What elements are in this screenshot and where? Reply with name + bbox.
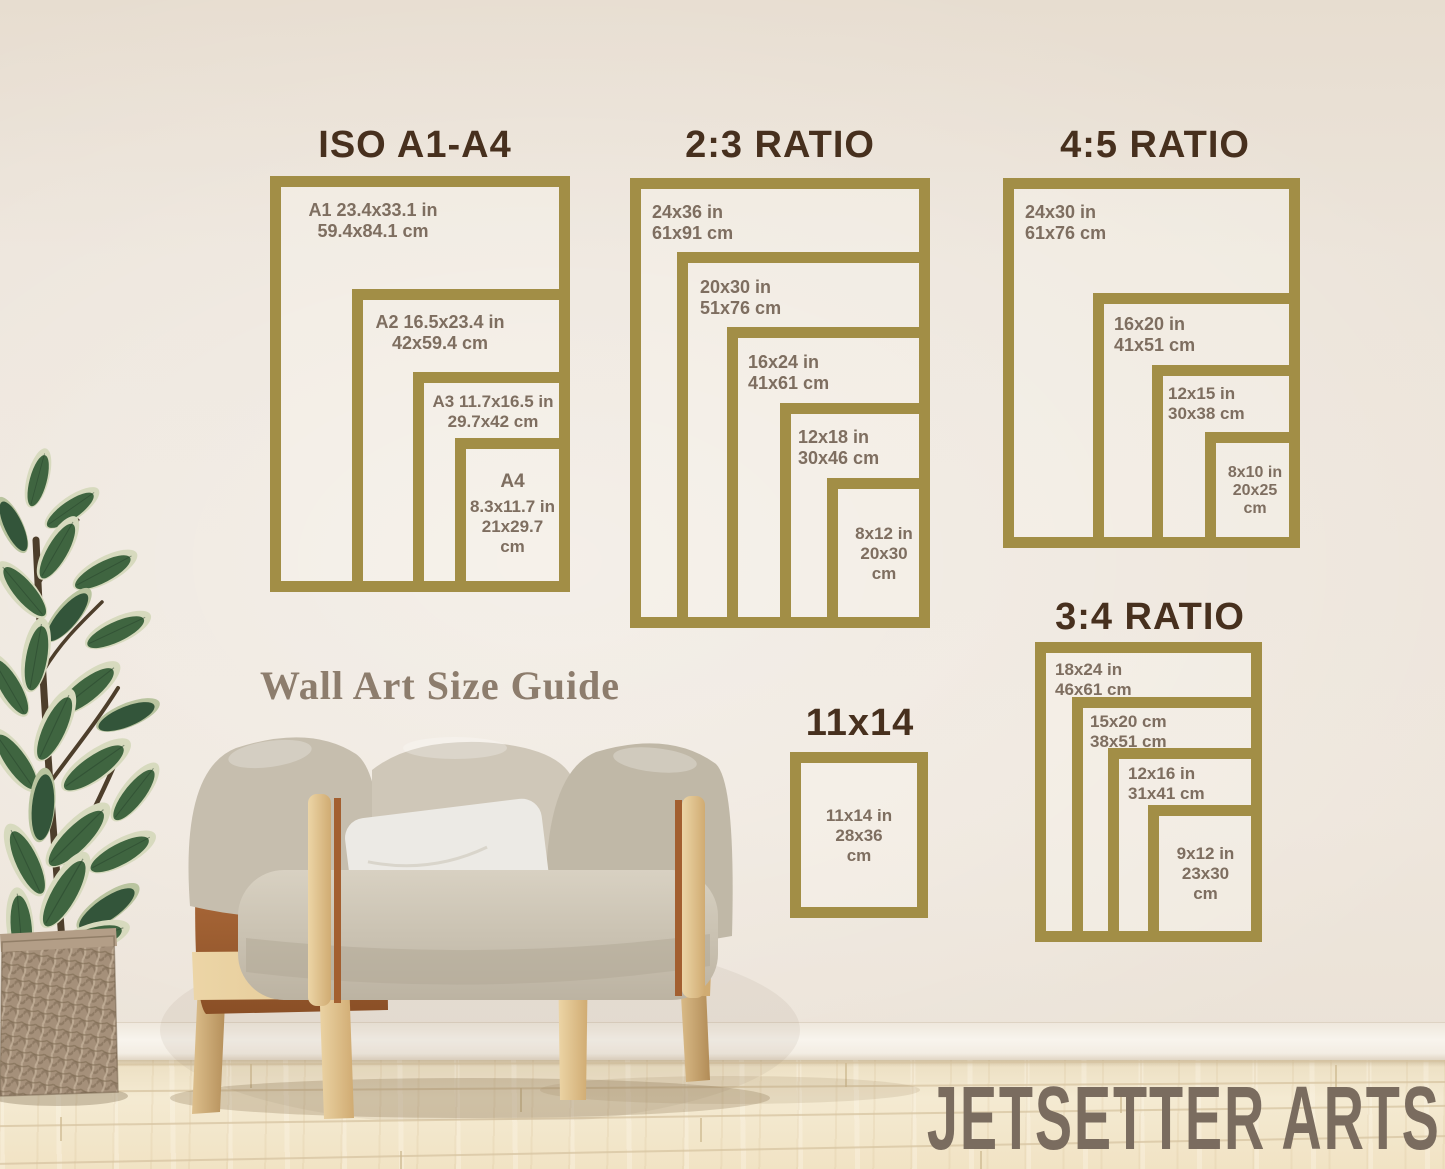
section-title-2-3: 2:3 RATIO bbox=[630, 126, 930, 164]
size-inches: 8x12 in bbox=[838, 524, 930, 544]
frame-label-a4: A4 8.3x11.7 in 21x29.7 cm bbox=[466, 472, 559, 557]
size-cm: 41x51 cm bbox=[1114, 335, 1195, 356]
frame-label-8x12: 8x12 in 20x30 cm bbox=[838, 524, 930, 584]
size-cm: 42x59.4 cm bbox=[365, 333, 515, 354]
floor-plank-joint bbox=[60, 1117, 62, 1141]
section-title-iso: ISO A1-A4 bbox=[250, 126, 580, 164]
frame-label-9x12: 9x12 in 23x30 cm bbox=[1159, 844, 1252, 904]
leather-strap-right bbox=[675, 800, 682, 996]
size-inches: 16x20 in bbox=[1114, 314, 1195, 335]
size-inches: 8.3x11.7 in bbox=[466, 497, 559, 517]
frame-label-24x36: 24x36 in 61x91 cm bbox=[652, 202, 733, 244]
size-inches: 8x10 in bbox=[1216, 464, 1294, 482]
size-inches: A3 11.7x16.5 in bbox=[424, 392, 562, 412]
brand-wordmark: JETSETTER ARTS bbox=[927, 1074, 1441, 1164]
section-title-3-4: 3:4 RATIO bbox=[1000, 598, 1300, 636]
cushion-highlight bbox=[403, 737, 507, 759]
size-inches: 12x18 in bbox=[798, 427, 879, 448]
section-title-4-5: 4:5 RATIO bbox=[1000, 126, 1310, 164]
frame-label-12x16: 12x16 in 31x41 cm bbox=[1128, 764, 1205, 804]
size-inches: 9x12 in bbox=[1159, 844, 1252, 864]
size-cm: 20x30 bbox=[838, 544, 930, 564]
size-inches: 16x24 in bbox=[748, 352, 829, 373]
size-inches: A2 16.5x23.4 in bbox=[365, 312, 515, 333]
size-cm: 38x51 cm bbox=[1090, 732, 1167, 752]
size-cm: 31x41 cm bbox=[1128, 784, 1205, 804]
leather-strap-left bbox=[334, 798, 341, 1003]
size-cm: 46x61 cm bbox=[1055, 680, 1132, 700]
floor-plank-joint bbox=[400, 1151, 402, 1169]
size-cm: 30x38 cm bbox=[1168, 404, 1245, 424]
floor-plank-joint bbox=[700, 1118, 702, 1142]
size-cm: 23x30 bbox=[1159, 864, 1252, 884]
frame-label-16x20: 16x20 in 41x51 cm bbox=[1114, 314, 1195, 356]
frame-label-8x10: 8x10 in 20x25 cm bbox=[1216, 464, 1294, 518]
size-inches: 12x16 in bbox=[1128, 764, 1205, 784]
frame-label-12x15: 12x15 in 30x38 cm bbox=[1168, 384, 1245, 424]
size-cm: 61x76 cm bbox=[1025, 223, 1106, 244]
frame-label-12x18: 12x18 in 30x46 cm bbox=[798, 427, 879, 469]
size-cm: 51x76 cm bbox=[700, 298, 781, 319]
room-scene: ISO A1-A4 A1 23.4x33.1 in 59.4x84.1 cm A… bbox=[0, 0, 1445, 1169]
size-inches: 20x30 in bbox=[700, 277, 781, 298]
frame-label-20x30: 20x30 in 51x76 cm bbox=[700, 277, 781, 319]
size-cm: 20x25 bbox=[1216, 482, 1294, 500]
size-cm: 59.4x84.1 cm bbox=[288, 221, 458, 242]
frame-label-15x20: 15x20 cm 38x51 cm bbox=[1090, 712, 1167, 752]
size-inches: 18x24 in bbox=[1055, 660, 1132, 680]
size-cm: 21x29.7 bbox=[466, 517, 559, 537]
size-cm-unit: cm bbox=[838, 564, 930, 584]
size-inches: A1 23.4x33.1 in bbox=[288, 200, 458, 221]
frame-label-a1: A1 23.4x33.1 in 59.4x84.1 cm bbox=[288, 200, 458, 242]
arm-post-left bbox=[308, 794, 331, 1006]
arm-post-right bbox=[682, 796, 705, 998]
size-inches: 12x15 in bbox=[1168, 384, 1245, 404]
size-cm: 41x61 cm bbox=[748, 373, 829, 394]
wicker-pot bbox=[0, 928, 118, 1096]
size-cm-unit: cm bbox=[1159, 884, 1252, 904]
size-cm-unit: cm bbox=[1216, 500, 1294, 518]
chair-cast-shadow bbox=[540, 1076, 920, 1104]
size-cm: 61x91 cm bbox=[652, 223, 733, 244]
size-cm-alt: 15x20 cm bbox=[1090, 712, 1167, 732]
size-cm: 30x46 cm bbox=[798, 448, 879, 469]
size-name: A4 bbox=[466, 472, 559, 492]
plant-leaves bbox=[0, 446, 167, 964]
frame-label-18x24: 18x24 in 46x61 cm bbox=[1055, 660, 1132, 700]
size-cm-unit: cm bbox=[466, 537, 559, 557]
size-inches: 24x36 in bbox=[652, 202, 733, 223]
frame-label-24x30: 24x30 in 61x76 cm bbox=[1025, 202, 1106, 244]
armchair bbox=[150, 700, 950, 1120]
frame-label-16x24: 16x24 in 41x61 cm bbox=[748, 352, 829, 394]
frame-label-a3: A3 11.7x16.5 in 29.7x42 cm bbox=[424, 392, 562, 432]
size-cm: 29.7x42 cm bbox=[424, 412, 562, 432]
frame-label-a2: A2 16.5x23.4 in 42x59.4 cm bbox=[365, 312, 515, 354]
size-inches: 24x30 in bbox=[1025, 202, 1106, 223]
